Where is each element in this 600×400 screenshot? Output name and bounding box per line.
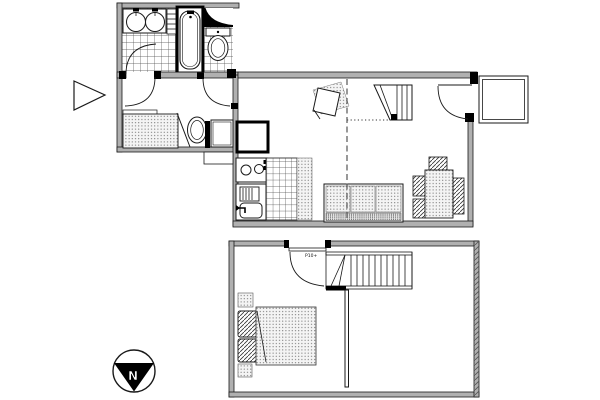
dining-chair <box>413 199 425 218</box>
duct <box>204 152 233 164</box>
floor-plan-svg: P10+ <box>0 0 600 400</box>
pillow <box>238 339 257 362</box>
cooktop-icon <box>236 158 267 182</box>
bedroom-door-leaf <box>289 248 326 251</box>
dining-set <box>413 157 464 218</box>
hall <box>125 77 230 106</box>
faucet-icon <box>133 8 139 12</box>
kitchen-sink-icon <box>236 184 266 220</box>
lower-floor-plan: P10+ <box>229 240 479 397</box>
towel-rail-icon <box>167 9 176 34</box>
toilet-icon <box>206 28 230 61</box>
faucet-icon <box>152 8 158 12</box>
compass: N <box>113 350 155 392</box>
counter-stipple <box>297 158 312 220</box>
hatched-wall <box>474 241 479 397</box>
double-bed <box>238 293 316 377</box>
stairs-down <box>326 252 412 291</box>
hall-door-arc <box>125 77 155 106</box>
wall <box>238 72 477 78</box>
balcony-landing <box>479 76 528 123</box>
armchair <box>313 82 349 119</box>
kitchen <box>236 122 312 220</box>
pillow <box>238 311 257 337</box>
partition-wall <box>345 290 349 387</box>
stair-door-label: P10+ <box>305 253 317 259</box>
partition-stub <box>205 121 210 148</box>
bedroom-door: P10+ <box>289 248 326 286</box>
sofa-backrest <box>326 213 401 221</box>
vanity-unit <box>204 8 233 27</box>
wall <box>468 119 473 226</box>
floor-plan-page: P10+ <box>0 0 600 400</box>
refrigerator-icon <box>237 122 268 152</box>
stairs-up <box>347 85 412 120</box>
upper-floor-plan <box>74 3 528 227</box>
wardrobe <box>123 114 178 148</box>
entry-door-arc <box>438 86 468 119</box>
compass-north-label: N <box>128 369 138 383</box>
dining-chair <box>453 178 464 214</box>
dining-table <box>425 170 453 218</box>
tiled-counter <box>266 158 297 220</box>
dining-chair <box>413 176 425 196</box>
door-jambs-lower <box>284 240 331 248</box>
nightstand <box>238 293 253 307</box>
entry-strip <box>123 110 233 148</box>
entry-arrow-icon <box>74 81 105 110</box>
wc-door-arc <box>203 78 230 106</box>
washing-machine-icon <box>211 120 233 147</box>
bathtub-icon <box>176 6 204 72</box>
sofa <box>324 184 403 222</box>
nightstand <box>238 364 252 377</box>
